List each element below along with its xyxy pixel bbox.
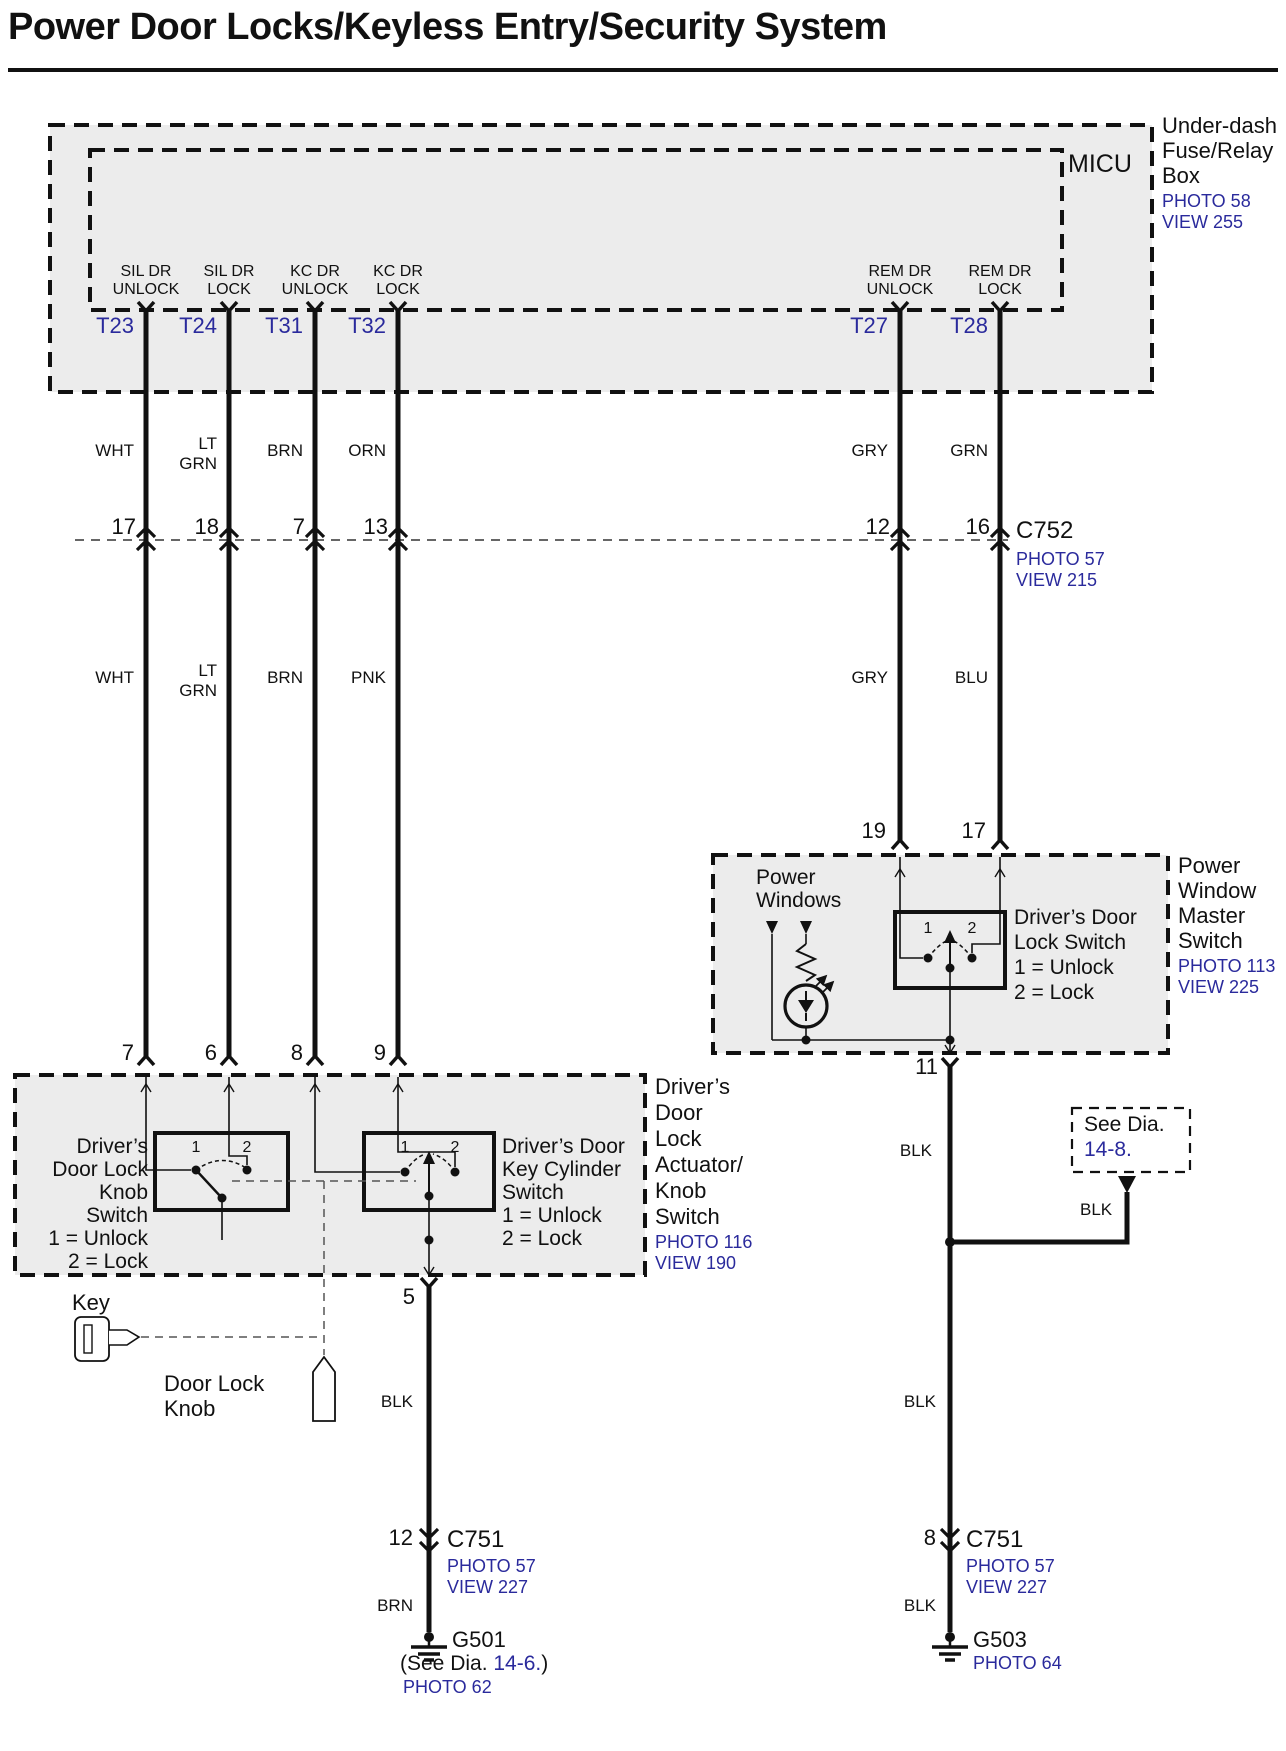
view-link[interactable]: VIEW 215 [1016, 570, 1097, 590]
micu-label: MICU [1068, 150, 1132, 179]
fuse-box-label: Fuse/Relay [1162, 139, 1273, 163]
wiring-diagram-page: Power Door Locks/Keyless Entry/Security … [0, 0, 1286, 1751]
switch-position-number: 2 [964, 920, 980, 938]
terminal-id-link[interactable]: T24 [157, 313, 217, 339]
see-dia-link[interactable]: 14-8. [1084, 1138, 1132, 1161]
wire-color-label: BRN [343, 1596, 413, 1616]
connector-name: C751 [966, 1526, 1023, 1554]
connector-pin: 12 [820, 514, 890, 540]
terminal-id-link[interactable]: T23 [74, 313, 134, 339]
key-switch-title: Switch [502, 1181, 564, 1204]
switch-position-number: 1 [188, 1139, 204, 1157]
actuator-label: Driver’s [655, 1075, 730, 1099]
view-link[interactable]: VIEW 255 [1162, 212, 1243, 232]
view-link[interactable]: VIEW 190 [655, 1253, 736, 1273]
terminal-id-link[interactable]: T32 [326, 313, 386, 339]
switch-title: Driver’s Door [1014, 906, 1137, 929]
key-label: Key [72, 1291, 110, 1315]
connector-pin: 11 [878, 1054, 938, 1080]
terminal-id-link[interactable]: T31 [243, 313, 303, 339]
power-windows-label: Power [756, 866, 816, 889]
wire-color-label: GRY [818, 668, 888, 688]
connector-pin: 16 [920, 514, 990, 540]
knob-switch-title: Knob [18, 1181, 148, 1204]
ground-symbol-g503 [932, 1632, 968, 1660]
connector-pin: 12 [343, 1525, 413, 1551]
photo-link[interactable]: PHOTO 113 [1178, 956, 1275, 976]
ground-name: G503 [973, 1628, 1027, 1652]
switch-position-number: 1 [920, 920, 936, 938]
connector-pin: 6 [147, 1040, 217, 1066]
ground-note: (See Dia. 14-6.) [400, 1652, 548, 1675]
fuse-box-label: Under-dash [1162, 114, 1277, 138]
terminal-label: LOCK [940, 281, 1060, 299]
key-switch-title: 2 = Lock [502, 1227, 582, 1250]
wire-color-label: BLU [918, 668, 988, 688]
connector-pin: 19 [816, 818, 886, 844]
wire-color-label: GRN [147, 454, 217, 474]
connector-pin: 8 [233, 1040, 303, 1066]
view-link[interactable]: VIEW 227 [447, 1577, 528, 1597]
wire-color-label: ORN [316, 441, 386, 461]
connector-pin: 13 [318, 514, 388, 540]
key-switch-title: 1 = Unlock [502, 1204, 602, 1227]
switch-title: 1 = Unlock [1014, 956, 1114, 979]
wire-color-label: GRY [818, 441, 888, 461]
knob-switch-title: 1 = Unlock [18, 1227, 148, 1250]
actuator-label: Door [655, 1101, 703, 1125]
actuator-label: Switch [655, 1205, 720, 1229]
ground-name: G501 [452, 1628, 506, 1652]
terminal-label: KC DR [338, 263, 458, 281]
wire-color-label: BLK [866, 1596, 936, 1616]
note-text: ) [541, 1652, 548, 1675]
terminal-label: REM DR [940, 263, 1060, 281]
switch-position-number: 2 [447, 1139, 463, 1157]
switch-title: Lock Switch [1014, 931, 1126, 954]
wire-color-label: BLK [862, 1141, 932, 1161]
connector-pin: 17 [916, 818, 986, 844]
knob-switch-title: Driver’s [18, 1135, 148, 1158]
wire-color-label: BLK [1080, 1200, 1112, 1220]
wire-color-label: BLK [866, 1392, 936, 1412]
title-divider [8, 68, 1278, 72]
connector-name: C751 [447, 1526, 504, 1554]
photo-link[interactable]: PHOTO 57 [1016, 549, 1105, 569]
wire-color-label: LT [147, 434, 217, 454]
wire-color-label: WHT [64, 441, 134, 461]
power-windows-label: Windows [756, 889, 841, 912]
wire-color-label: GRN [147, 681, 217, 701]
wire-color-label: BRN [233, 441, 303, 461]
see-dia-link[interactable]: 14-6. [493, 1652, 541, 1675]
actuator-label: Actuator/ [655, 1153, 743, 1177]
pwms-label: Window [1178, 879, 1256, 903]
wire-color-label: GRN [918, 441, 988, 461]
door-lock-knob-icon [313, 1357, 335, 1421]
photo-link[interactable]: PHOTO 62 [403, 1677, 492, 1697]
view-link[interactable]: VIEW 225 [1178, 977, 1259, 997]
connector-pin: 7 [235, 514, 305, 540]
connector-pin: 9 [316, 1040, 386, 1066]
wire-color-label: PNK [316, 668, 386, 688]
knob-switch-title: 2 = Lock [18, 1250, 148, 1273]
connector-pin: 7 [64, 1040, 134, 1066]
actuator-label: Knob [655, 1179, 706, 1203]
see-dia-label: See Dia. [1084, 1113, 1165, 1136]
actuator-label: Lock [655, 1127, 701, 1151]
terminal-id-link[interactable]: T28 [928, 313, 988, 339]
connector-name: C752 [1016, 517, 1073, 545]
photo-link[interactable]: PHOTO 58 [1162, 191, 1251, 211]
door-lock-knob-label: Door Lock [164, 1372, 264, 1396]
wire-color-label: BRN [233, 668, 303, 688]
terminal-id-link[interactable]: T27 [828, 313, 888, 339]
pwms-label: Master [1178, 904, 1245, 928]
switch-position-number: 1 [397, 1139, 413, 1157]
photo-link[interactable]: PHOTO 57 [447, 1556, 536, 1576]
switch-title: 2 = Lock [1014, 981, 1094, 1004]
connector-pin: 8 [866, 1525, 936, 1551]
knob-switch-title: Switch [18, 1204, 148, 1227]
photo-link[interactable]: PHOTO 64 [973, 1653, 1062, 1673]
wire-color-label: LT [147, 661, 217, 681]
connector-pin: 17 [66, 514, 136, 540]
key-switch-title: Driver’s Door [502, 1135, 625, 1158]
feed-arrow-icon [1118, 1176, 1136, 1193]
pwms-label: Switch [1178, 929, 1243, 953]
knob-switch-title: Door Lock [18, 1158, 148, 1181]
photo-link[interactable]: PHOTO 116 [655, 1232, 752, 1252]
key-icon [75, 1317, 139, 1361]
switch-position-number: 2 [239, 1139, 255, 1157]
key-switch-title: Key Cylinder [502, 1158, 621, 1181]
pwms-label: Power [1178, 854, 1240, 878]
view-link[interactable]: VIEW 227 [966, 1577, 1047, 1597]
wire-color-label: BLK [343, 1392, 413, 1412]
connector-pin: 18 [149, 514, 219, 540]
connector-pin: 5 [355, 1284, 415, 1310]
photo-link[interactable]: PHOTO 57 [966, 1556, 1055, 1576]
door-lock-knob-label: Knob [164, 1397, 215, 1421]
note-text: (See Dia. [400, 1652, 493, 1675]
fuse-box-label: Box [1162, 164, 1200, 188]
terminal-label: LOCK [338, 281, 458, 299]
page-title: Power Door Locks/Keyless Entry/Security … [8, 6, 887, 49]
wire-color-label: WHT [64, 668, 134, 688]
